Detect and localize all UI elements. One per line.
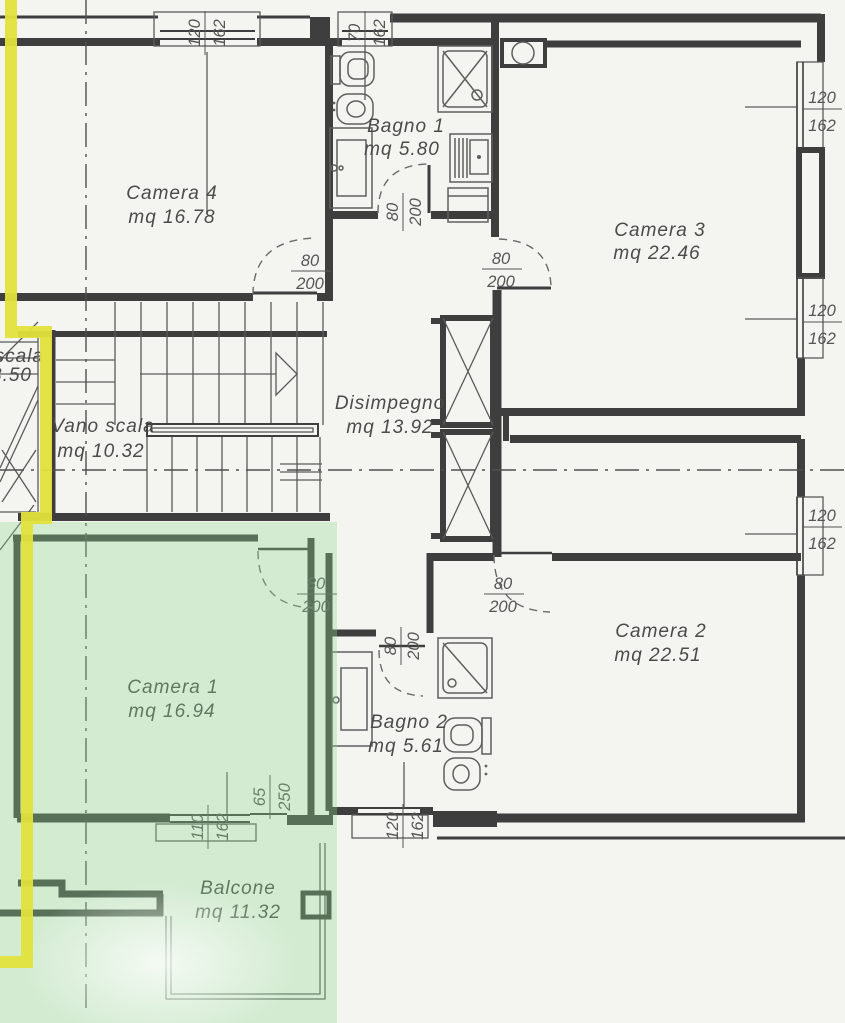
room-label-vano-scala: Vano scala (51, 416, 154, 437)
elevator-shafts (431, 318, 493, 539)
dim-window-bagno2-h: 162 (409, 812, 427, 840)
room-area-camera3: mq 22.46 (613, 243, 700, 264)
dim-window-top-bagno1-w: 70 (346, 23, 364, 42)
bidet-icon (444, 758, 487, 790)
cut-room-label: scala (0, 346, 44, 367)
room-area-bagno1: mq 5.80 (364, 139, 440, 160)
shower-icon (438, 46, 492, 112)
dim-window-top-bagno1-h: 162 (371, 19, 389, 47)
dim-window-camera3-upper-h: 162 (808, 117, 836, 135)
room-label-bagno2: Bagno 2 (370, 712, 448, 733)
shower-icon (438, 638, 492, 698)
dim-window-camera2-w: 120 (808, 507, 836, 525)
cut-room-area: 3.50 (0, 365, 32, 386)
dim-door-bagno1-h: 200 (407, 197, 425, 226)
camera3-boiler (502, 40, 545, 66)
dim-door-camera2-h: 200 (488, 598, 517, 616)
dim-window-camera3-lower-w: 120 (808, 302, 836, 320)
dim-door-camera3-h: 200 (486, 273, 515, 291)
room-area-camera4: mq 16.78 (128, 207, 215, 228)
stair-direction-arrow (276, 353, 297, 395)
dim-window-bagno2-w: 120 (384, 811, 402, 839)
room-label-camera4: Camera 4 (126, 183, 217, 204)
dim-door-camera4-w: 80 (301, 252, 320, 270)
room-label-disimpegno: Disimpegno (335, 393, 445, 414)
floor-plan-canvas: Camera 4 mq 16.78 Bagno 1 mq 5.80 Camera… (0, 0, 845, 1023)
room-area-disimpegno: mq 13.92 (346, 417, 433, 438)
dim-window-top-left-h: 162 (211, 19, 229, 47)
dim-door-camera2-w: 80 (494, 575, 513, 593)
dim-door-camera4-h: 200 (295, 275, 324, 293)
dim-window-camera3-lower-h: 162 (808, 330, 836, 348)
dim-door-bagno2-h: 200 (405, 631, 423, 660)
boiler-icon (512, 42, 534, 64)
room-area-vano-scala: mq 10.32 (57, 441, 144, 462)
dim-door-bagno2-w: 80 (382, 636, 400, 655)
dim-window-top-left-w: 120 (186, 18, 204, 46)
floor-plan-drawing: Camera 4 mq 16.78 Bagno 1 mq 5.80 Camera… (0, 0, 845, 1023)
toilet-icon (331, 52, 374, 86)
room-area-camera2: mq 22.51 (614, 645, 701, 666)
toilet-icon (444, 718, 491, 754)
dim-window-camera2-h: 162 (808, 535, 836, 553)
room-label-camera2: Camera 2 (615, 621, 706, 642)
laundry-sink-icon (450, 134, 492, 182)
room-area-bagno2: mq 5.61 (368, 736, 444, 757)
dim-door-bagno1-w: 80 (384, 202, 402, 221)
dim-door-camera3-w: 80 (492, 250, 511, 268)
dim-window-camera3-upper-w: 120 (808, 89, 836, 107)
room-label-camera3: Camera 3 (614, 220, 705, 241)
washbasin-icon (332, 652, 372, 746)
room-label-bagno1: Bagno 1 (367, 116, 445, 137)
